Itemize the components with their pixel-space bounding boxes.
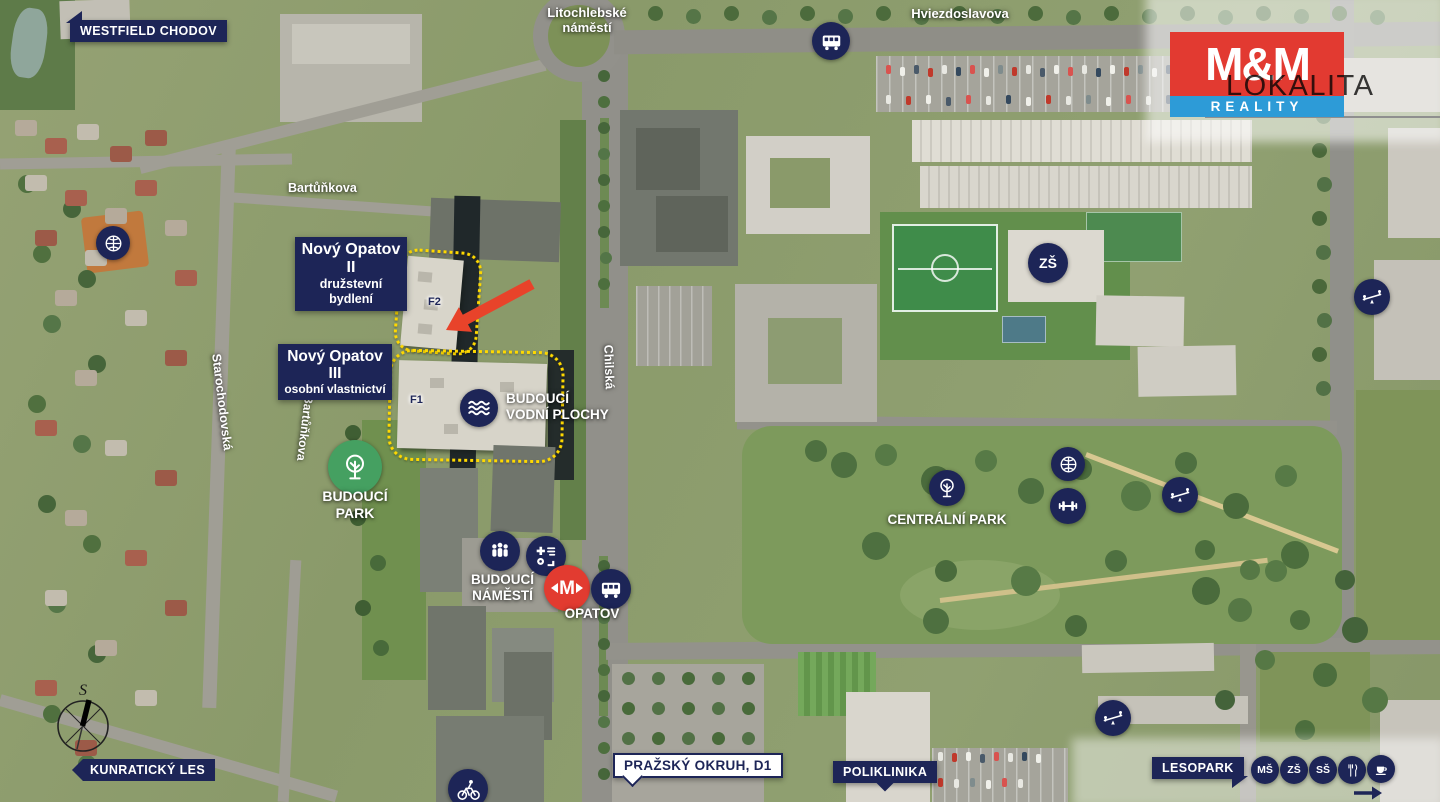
map-terrain-feature: [768, 318, 842, 384]
map-terrain-feature: [1061, 457, 1076, 472]
seesaw-icon: [1360, 285, 1384, 309]
map-terrain-feature: [1171, 488, 1189, 502]
map-terrain-feature: [469, 402, 489, 405]
bartunkova-vertical-label: Bartůňkova: [294, 394, 316, 461]
tree-icon: [339, 451, 371, 483]
map-terrain-feature: [537, 547, 545, 555]
map-terrain-feature: [15, 120, 37, 136]
map-terrain-feature: [548, 561, 555, 566]
map-terrain-feature: [462, 788, 475, 795]
fitness-badge: [1050, 488, 1086, 524]
map-terrain-feature: [292, 24, 410, 64]
map-terrain-feature: [469, 779, 473, 783]
playground-badge-2: [1162, 477, 1198, 513]
map-terrain-feature: [1348, 764, 1356, 775]
playground-badge-1: [1354, 279, 1390, 315]
map-terrain-feature: [834, 46, 838, 50]
budouci-namesti-label: BUDOUCÍ NÁMĚSTÍ: [455, 572, 550, 604]
park-line1: BUDOUCÍ: [305, 488, 405, 505]
metro-badge: M: [544, 565, 590, 611]
map-terrain-feature: [492, 544, 496, 548]
park-line2: PARK: [305, 505, 405, 522]
map-terrain-feature: [1105, 716, 1122, 721]
map-terrain-feature: [1104, 711, 1122, 725]
novy-opatov-2-box: Nový Opatov II družstevní bydlení: [295, 237, 407, 311]
map-terrain-feature: [1374, 260, 1440, 380]
bus-stop-badge: [812, 22, 850, 60]
map-terrain-feature: [498, 548, 503, 557]
bicycle-icon: [455, 776, 482, 802]
map-terrain-feature: [1062, 501, 1065, 511]
map-terrain-feature: [892, 224, 998, 312]
map-terrain-feature: [829, 37, 833, 41]
map-terrain-feature: [492, 549, 496, 556]
map-terrain-feature: [503, 544, 507, 548]
vodni-line1: BUDOUCÍ: [506, 391, 609, 407]
centralni-park-label: CENTRÁLNÍ PARK: [877, 512, 1017, 527]
map-terrain-feature: [1002, 316, 1046, 343]
map-terrain-feature: [1388, 128, 1440, 238]
basketball-icon: [1057, 453, 1080, 476]
map-terrain-feature: [825, 46, 829, 50]
pointer-arrow-icon: [432, 276, 542, 340]
map-terrain-feature: [498, 543, 503, 548]
map-terrain-feature: [604, 594, 608, 598]
cycling-badge: [448, 769, 488, 802]
map-terrain-feature: [18, 175, 36, 193]
novy-opatov-3-title: Nový Opatov III: [284, 348, 386, 382]
map-terrain-feature: [1111, 721, 1115, 725]
map-terrain-feature: [1075, 503, 1077, 509]
map-terrain-feature: [547, 547, 555, 549]
metro-wing-left: [551, 583, 558, 593]
map-terrain-feature: [347, 456, 363, 479]
basketball-badge-east: [1051, 447, 1085, 481]
metro-icon: M: [559, 579, 575, 598]
map-terrain-feature: [1061, 457, 1076, 472]
map-terrain-feature: [278, 560, 302, 802]
map-terrain-feature: [1059, 501, 1077, 511]
map-terrain-feature: [805, 440, 827, 462]
litochlebske-line2: náměstí: [527, 20, 647, 35]
ss-badge: SŠ: [1309, 756, 1337, 784]
map-terrain-feature: [1172, 493, 1189, 498]
litochlebske-namesti-label: Litochlebské náměstí: [527, 5, 647, 35]
map-terrain-feature: [824, 37, 828, 41]
map-terrain-feature: [920, 166, 1252, 208]
map-terrain-feature: [539, 560, 542, 563]
map-terrain-feature: [1364, 295, 1381, 300]
map-terrain-feature: [469, 407, 489, 410]
map-terrain-feature: [941, 480, 953, 497]
chilska-label: Chilská: [601, 345, 617, 390]
kunraticky-les-banner: KUNRATICKÝ LES: [72, 759, 215, 781]
map-terrain-feature: [469, 411, 489, 414]
map-terrain-feature: [1195, 540, 1215, 560]
map-terrain-feature: [604, 585, 608, 589]
map-terrain-feature: [537, 547, 556, 566]
cafe-badge: [1367, 755, 1395, 783]
map-terrain-feature: [609, 585, 613, 589]
map-terrain-feature: [1059, 503, 1061, 509]
tree-icon: [935, 476, 959, 500]
map-terrain-feature: [636, 286, 712, 366]
map-terrain-feature: [636, 128, 700, 190]
future-park-badge: [328, 440, 382, 494]
map-terrain-feature: [1375, 766, 1386, 774]
compass-icon: S: [52, 680, 114, 760]
map-terrain-feature: [614, 594, 618, 598]
poliklinika-banner: POLIKLINIKA: [833, 761, 937, 783]
basketball-icon: [102, 232, 125, 255]
namesti-line2: NÁMĚSTÍ: [455, 588, 550, 604]
community-badge: [480, 531, 520, 571]
ms-badge: MŠ: [1251, 756, 1279, 784]
seesaw-icon: [1168, 483, 1192, 507]
map-terrain-feature: [446, 279, 535, 332]
map-terrain-feature: [458, 779, 479, 798]
water-badge: [460, 389, 498, 427]
bus-icon: [819, 29, 844, 54]
map-terrain-feature: [824, 37, 838, 41]
map-terrain-feature: [1370, 300, 1374, 304]
compass-north-text: S: [79, 682, 87, 699]
playground-badge-3: [1095, 700, 1131, 736]
map-terrain-feature: [1138, 345, 1237, 397]
novy-opatov-3-subtitle: osobní vlastnictví: [284, 382, 386, 396]
map-terrain-feature: [1375, 773, 1385, 774]
map-terrain-feature: [598, 70, 610, 82]
map-terrain-feature: [938, 752, 943, 761]
prazsky-okruh-banner: PRAŽSKÝ OKRUH, D1: [613, 753, 783, 778]
map-terrain-feature: [504, 549, 508, 556]
zs-badge: ZŠ: [1280, 756, 1308, 784]
map-terrain-feature: [648, 6, 663, 21]
novy-opatov-3-box: Nový Opatov III osobní vlastnictví: [278, 344, 392, 400]
budouci-park-label: BUDOUCÍ PARK: [305, 488, 405, 522]
page-title: LOKALITA: [1226, 70, 1374, 103]
basketball-badge-west: [96, 226, 130, 260]
map-terrain-feature: [1260, 652, 1370, 742]
people-icon: [487, 538, 513, 564]
map-terrain-feature: [1096, 295, 1185, 347]
map-terrain-feature: [547, 551, 555, 553]
building-f1-label: F1: [410, 394, 423, 406]
centralni-park-badge: [929, 470, 965, 506]
bartunkova-label: Bartůňkova: [288, 181, 357, 195]
map-terrain-feature: [656, 196, 728, 252]
zs-school-badge: ZŠ: [1028, 243, 1068, 283]
hviezdoslavova-label: Hviezdoslavova: [895, 6, 1025, 21]
map-terrain-feature: [1348, 764, 1352, 775]
namesti-line1: BUDOUCÍ: [455, 572, 550, 588]
map-terrain-feature: [1376, 766, 1383, 773]
map-terrain-feature: [770, 158, 830, 208]
map-terrain-feature: [492, 543, 508, 557]
map-terrain-feature: [1082, 643, 1214, 673]
more-amenities-arrow-icon: [1352, 785, 1384, 801]
novy-opatov-2-title: Nový Opatov II: [301, 241, 401, 277]
novy-opatov-2-subtitle: družstevní bydlení: [301, 277, 401, 307]
map-terrain-feature: [604, 585, 618, 589]
waves-icon: [466, 395, 492, 421]
map-terrain-feature: [428, 606, 486, 710]
map-terrain-feature: [106, 236, 121, 251]
dumbbell-icon: [1056, 494, 1080, 518]
map-terrain-feature: [469, 402, 489, 415]
building-f2-label: F2: [428, 296, 441, 308]
map-terrain-feature: [1355, 764, 1356, 775]
map-terrain-feature: [932, 748, 1068, 802]
map-terrain-feature: [106, 236, 121, 251]
map-terrain-feature: [622, 672, 635, 685]
opatov-station-label: OPATOV: [552, 606, 632, 621]
map-terrain-feature: [886, 65, 891, 74]
litochlebske-line1: Litochlebské: [527, 5, 647, 20]
seesaw-icon: [1101, 706, 1125, 730]
map-terrain-feature: [1178, 498, 1182, 502]
aerial-map: F2 F1 Litochlebské náměstí Hviezdoslavov…: [0, 0, 1440, 802]
map-terrain-feature: [1383, 767, 1386, 770]
map-terrain-feature: [834, 37, 838, 41]
map-terrain-feature: [600, 118, 609, 308]
map-terrain-feature: [549, 554, 555, 556]
map-terrain-feature: [345, 425, 361, 441]
cutlery-icon: [1344, 762, 1361, 779]
bus-icon: [598, 576, 624, 602]
map-terrain-feature: [1372, 787, 1382, 800]
lesopark-banner: LESOPARK: [1152, 757, 1244, 779]
westfield-chodov-banner: WESTFIELD CHODOV: [70, 20, 227, 42]
vodni-line2: VODNÍ PLOCHY: [506, 407, 609, 423]
services-icon: [533, 543, 559, 569]
opatov-bus-badge: [591, 569, 631, 609]
coffee-icon: [1373, 761, 1390, 778]
map-terrain-feature: [1363, 290, 1381, 304]
vodni-plochy-label: BUDOUCÍ VODNÍ PLOCHY: [506, 391, 609, 422]
map-terrain-feature: [614, 585, 618, 589]
map-terrain-feature: [1356, 390, 1440, 640]
map-terrain-feature: [1071, 501, 1074, 511]
restaurant-badge: [1338, 756, 1366, 784]
map-terrain-feature: [83, 700, 90, 726]
metro-wing-right: [576, 583, 583, 593]
